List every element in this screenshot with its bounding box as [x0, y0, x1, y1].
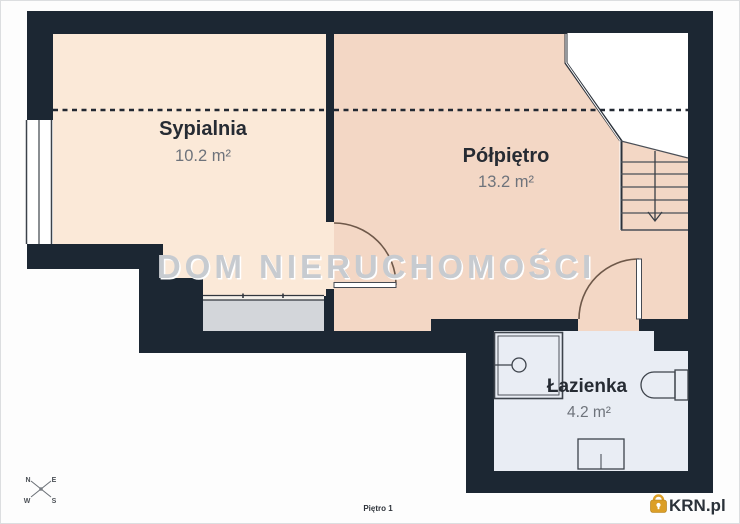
compass-n: N	[25, 477, 30, 484]
compass-w: W	[24, 498, 31, 505]
watermark: DOM NIERUCHOMOŚCI	[157, 248, 595, 285]
floor-label: Piętro 1	[363, 504, 393, 513]
bedroom-area: 10.2 m²	[175, 147, 231, 165]
krn-logo-text: KRN.pl	[669, 496, 726, 515]
bathroom-label: Łazienka	[547, 376, 628, 397]
floor-plan-svg: DOM NIERUCHOMOŚCI DOM NIERUCHOMOŚCI Sypi…	[1, 1, 740, 524]
krn-logo: KRN.pl	[651, 496, 726, 515]
compass-rose: N E W S	[24, 477, 57, 505]
wardrobe	[203, 294, 324, 332]
compass-center	[39, 487, 43, 491]
halffloor-label: Półpiętro	[463, 145, 550, 167]
padlock-icon	[651, 496, 667, 513]
bathroom-area: 4.2 m²	[567, 404, 611, 421]
room-bathroom	[494, 331, 688, 471]
compass-e: E	[52, 477, 57, 484]
floor-plan-image: DOM NIERUCHOMOŚCI DOM NIERUCHOMOŚCI Sypi…	[0, 0, 740, 524]
compass-s: S	[52, 498, 57, 505]
bedroom-label: Sypialnia	[159, 118, 248, 140]
bedroom-window	[25, 120, 53, 244]
halffloor-area: 13.2 m²	[478, 173, 534, 191]
